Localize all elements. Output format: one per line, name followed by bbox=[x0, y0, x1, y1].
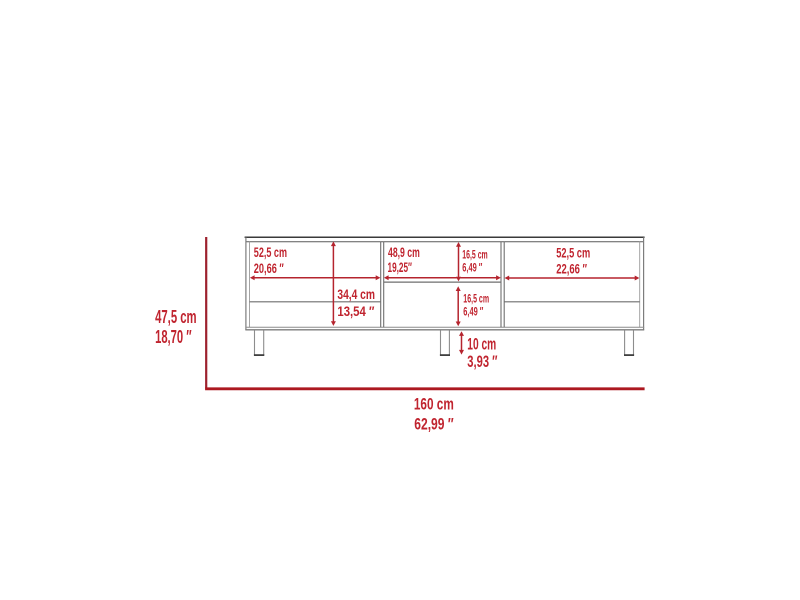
svg-text:18,70 ″: 18,70 ″ bbox=[155, 327, 192, 347]
svg-text:160 cm: 160 cm bbox=[414, 394, 454, 413]
svg-text:16,5 cm: 16,5 cm bbox=[462, 248, 487, 262]
svg-text:34,4 cm: 34,4 cm bbox=[337, 286, 375, 302]
svg-text:47,5 cm: 47,5 cm bbox=[155, 307, 197, 327]
svg-text:20,66 ″: 20,66 ″ bbox=[254, 260, 284, 276]
svg-text:13,54 ″: 13,54 ″ bbox=[337, 303, 374, 319]
svg-text:19,25″: 19,25″ bbox=[388, 259, 413, 275]
svg-text:10 cm: 10 cm bbox=[467, 335, 496, 354]
svg-text:62,99 ″: 62,99 ″ bbox=[414, 414, 453, 433]
svg-text:16,5 cm: 16,5 cm bbox=[463, 292, 489, 306]
svg-text:52,5 cm: 52,5 cm bbox=[556, 245, 590, 261]
svg-text:6,49 ″: 6,49 ″ bbox=[462, 261, 482, 275]
svg-text:6,49 ″: 6,49 ″ bbox=[463, 305, 483, 319]
svg-text:22,66 ″: 22,66 ″ bbox=[556, 260, 587, 276]
svg-text:3,93 ″: 3,93 ″ bbox=[467, 352, 497, 371]
svg-text:52,5 cm: 52,5 cm bbox=[254, 244, 287, 260]
svg-text:48,9 cm: 48,9 cm bbox=[388, 244, 420, 260]
